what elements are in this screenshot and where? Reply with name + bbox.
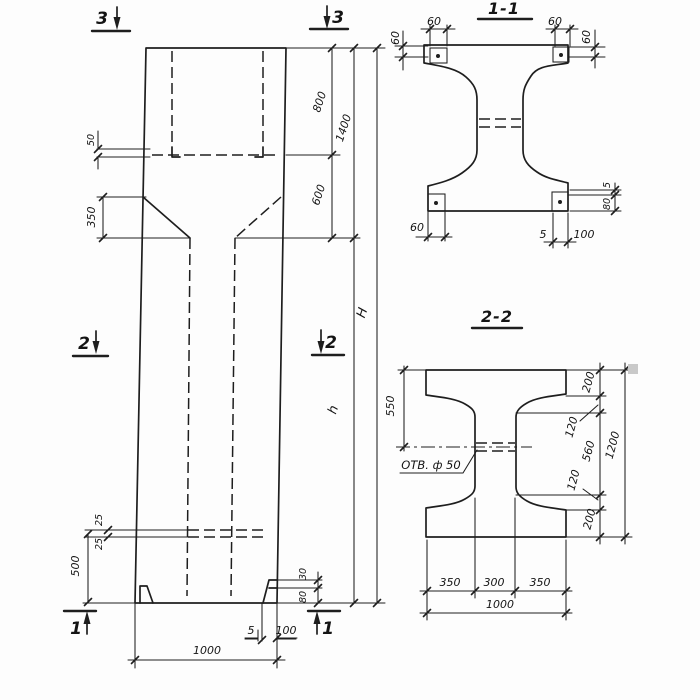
- dim-height-H: H: [354, 306, 371, 320]
- dim-foot-30: 30: [298, 568, 309, 580]
- section-1-1-view: 1-1 60 60 60 60: [389, 0, 621, 248]
- section-mark-2-right-label: 2: [325, 333, 337, 353]
- dim-foot-5: 5: [248, 624, 255, 637]
- dim-s22-550: 550: [384, 396, 397, 417]
- dim-s22-1200: 1200: [603, 430, 623, 460]
- elevation-view: 50 350 800 600 1400 h H 25 25 500 30 80 …: [64, 6, 385, 668]
- section-mark-1-left-arrowhead: [84, 611, 91, 624]
- hidden-web-edges: [187, 238, 235, 596]
- section-2-2-title: 2-2: [481, 307, 513, 326]
- dim-height-h: h: [325, 404, 342, 416]
- dim-s11-left-60: 60: [389, 31, 402, 45]
- foot-bracket-left: [140, 586, 153, 603]
- drawing-sheet: 50 350 800 600 1400 h H 25 25 500 30 80 …: [0, 0, 700, 700]
- dim-600: 600: [309, 183, 328, 207]
- section-mark-1-left-label: 1: [70, 619, 82, 639]
- embedded-plate-bottom-left: [428, 194, 445, 211]
- haunch-diagonal-right: [235, 197, 281, 238]
- dim-width-1000: 1000: [193, 644, 221, 657]
- dim-s11-bottom-left-60: 60: [410, 221, 424, 234]
- section-mark-3-left-arrowhead: [114, 17, 121, 30]
- section-mark-3-right-label: 3: [332, 8, 344, 28]
- dim-s11-right-60: 60: [580, 30, 593, 44]
- section-mark-3-left: 3: [92, 7, 130, 31]
- section-mark-1-right-arrowhead: [314, 611, 321, 624]
- dim-s22-120-top: 120: [563, 415, 581, 439]
- section-1-1-hole-hidden-lines: [479, 119, 521, 127]
- section-1-1-dimension-lines: [403, 29, 615, 242]
- section-1-1-outline: [424, 45, 568, 211]
- section-mark-2-left-label: 2: [78, 334, 90, 354]
- dim-slot-25-lower: 25: [94, 538, 105, 550]
- section-2-2-outline: [426, 370, 566, 537]
- dim-s22-200-bottom: 200: [581, 507, 599, 531]
- hole-callout: ОТВ. ф 50: [400, 450, 477, 473]
- embedded-plate-top-left: [430, 48, 447, 63]
- section-2-2-view: 2-2 ОТВ. ф 50 550 200 120 560 120 200 12…: [384, 307, 638, 620]
- section-1-1-title: 1-1: [488, 0, 520, 18]
- haunch-diagonal-left: [143, 197, 190, 238]
- scan-artifact: [628, 364, 638, 374]
- dim-s22-200-top: 200: [580, 370, 598, 394]
- dim-foot-100: 100: [276, 624, 297, 637]
- dim-s22-560: 560: [580, 439, 598, 463]
- dim-s22-350-right: 350: [530, 576, 551, 589]
- section-mark-3-left-label: 3: [96, 9, 108, 29]
- dim-s11-bottom-100: 100: [574, 228, 595, 241]
- dim-s11-top-left-60: 60: [427, 15, 441, 28]
- dim-s11-right-80: 80: [602, 198, 613, 210]
- dim-haunch-350: 350: [85, 207, 98, 228]
- section-2-2-extension-lines: [398, 370, 632, 620]
- section-mark-2-right-arrowhead: [318, 341, 325, 354]
- dim-step-50: 50: [86, 134, 97, 146]
- hole-label: ОТВ. ф 50: [401, 458, 460, 472]
- dim-foot-80: 80: [298, 591, 309, 603]
- embedded-plate-top-right: [553, 47, 569, 62]
- drawing-canvas: 50 350 800 600 1400 h H 25 25 500 30 80 …: [0, 0, 700, 700]
- dim-800: 800: [310, 90, 329, 114]
- foot-bracket-right: [263, 580, 277, 603]
- dim-s11-top-right-60: 60: [548, 15, 562, 28]
- embedded-plate-bottom-right: [552, 192, 568, 211]
- hidden-recess-edges: [152, 51, 280, 155]
- section-mark-2-left-arrowhead: [93, 341, 100, 354]
- dim-s11-right-5: 5: [602, 182, 613, 188]
- section-mark-2-left: 2: [73, 331, 108, 356]
- dim-slot-25-upper: 25: [94, 514, 105, 526]
- section-mark-3-right-arrowhead: [324, 16, 331, 29]
- slot-lines-hidden: [188, 530, 268, 537]
- section-mark-1-right-label: 1: [322, 619, 334, 639]
- section-mark-2-right: 2: [312, 330, 344, 355]
- dim-s22-300: 300: [484, 576, 505, 589]
- dim-s22-1000: 1000: [486, 598, 514, 611]
- dim-500: 500: [69, 556, 82, 577]
- dim-1400: 1400: [333, 113, 354, 144]
- section-1-1-extension-lines: [395, 25, 621, 248]
- dim-s22-120-bottom: 120: [565, 468, 583, 492]
- dim-s22-350-left: 350: [440, 576, 461, 589]
- section-mark-1-left: 1: [64, 611, 96, 639]
- section-mark-3-right: 3: [310, 6, 348, 29]
- section-mark-1-right: 1: [308, 611, 340, 639]
- dim-s11-bottom-5: 5: [540, 228, 547, 241]
- section-1-1-dim-ticks: [400, 26, 619, 246]
